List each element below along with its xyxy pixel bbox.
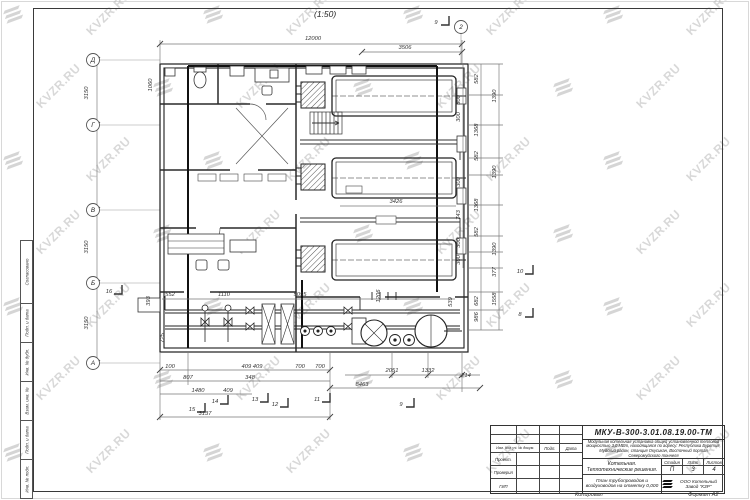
tb-role: Проект. (491, 453, 517, 465)
strip-label: Согласовано (24, 259, 29, 286)
section-marker-flag (114, 285, 122, 294)
dim-label: 1368 (474, 123, 480, 137)
tb-cell (540, 479, 560, 493)
dim-label: 1480 (192, 388, 206, 394)
strip-cell: Инв. № подл. (20, 460, 33, 499)
dim-label: 300 (456, 111, 462, 121)
strip-cell: Подп. и дата (20, 421, 33, 460)
section-marker-flag (525, 265, 533, 274)
dim-label: 1390 (492, 165, 498, 179)
tb-cell (491, 435, 517, 443)
section-marker-label: 14 (212, 399, 218, 405)
dim-label: 3506 (399, 45, 413, 51)
tb-cell (517, 453, 541, 465)
gallery-valves (201, 305, 352, 342)
section-marker-label: 11 (314, 397, 320, 403)
sheets-value: 4 (704, 466, 724, 474)
section-marker-label: 16 (106, 289, 113, 295)
dim-label: 2051 (385, 368, 399, 374)
strip-label: Взам. инв. № (24, 387, 29, 414)
section-marker-label: 10 (517, 269, 524, 275)
tb-cell (540, 426, 560, 434)
section-marker-flag (322, 393, 330, 402)
dim-label: 1390 (492, 242, 498, 256)
company-name: ООО Котельный Завод "КЗР" (674, 479, 723, 489)
section-marker-flag (260, 393, 268, 402)
dim-label: 100 (165, 364, 175, 370)
dim-label: 1368 (474, 198, 480, 212)
dim-label: 582 (474, 150, 480, 160)
dim-label: 300 (456, 237, 462, 247)
dim-label: 539 (448, 296, 454, 306)
grid-bubble-label: А (90, 360, 95, 367)
footer-copied: Копировал (575, 492, 603, 498)
section-marker-flag (220, 395, 228, 404)
strip-label: Инв. № дубл. (24, 348, 29, 375)
boiler-unit-1 (296, 76, 466, 116)
dim-label: 1332 (422, 368, 436, 374)
dim-label: 377 (492, 266, 498, 276)
grid-bubble-label: В (91, 207, 95, 214)
dim-label: 5055 (294, 292, 308, 298)
grid-bubble-label: Б (91, 280, 95, 287)
dim-label: 1390 (492, 89, 498, 103)
dim-label: 12000 (305, 36, 322, 42)
sheet-value: 3 (683, 466, 704, 474)
tb-cell (517, 435, 541, 443)
dim-label: 214 (460, 373, 471, 379)
dim-label: 300 (456, 254, 462, 264)
tb-cell (540, 466, 560, 478)
strip-cell: Согласовано (20, 240, 33, 304)
boiler-unit-2 (296, 158, 466, 198)
strip-cell: Инв. № дубл. (20, 343, 33, 382)
dim-label: 582 (474, 73, 480, 83)
dim-label: 3150 (84, 240, 90, 254)
dim-label: 700 (295, 364, 305, 370)
tb-cell (560, 453, 582, 465)
stairs (310, 112, 342, 134)
dim-label: 700 (315, 364, 325, 370)
dim-label: 807 (183, 375, 193, 381)
tb-cell (560, 479, 582, 493)
title-block: Изм. Кол.уч. № докум. Подп. Дата Проект.… (490, 425, 725, 494)
sheets-label: Листов (704, 459, 724, 465)
section-marker-label: 9 (434, 20, 438, 26)
grid-bubble-label: Д (90, 57, 96, 64)
title-block-main: МКУ-В-300-3.01.08.19.00-ТМ Модульная кот… (583, 426, 724, 493)
strip-cell: Взам. инв. № (20, 382, 33, 421)
dim-label: 409 (223, 388, 233, 394)
dim-label: 3426 (390, 199, 404, 205)
tb-cell (517, 479, 541, 493)
stage-table: Стадия Лист Листов П 3 4 ООО Котельный З… (662, 459, 724, 493)
dim-label: 743 (456, 209, 462, 219)
dim-label: 300 (456, 94, 462, 104)
dim-label: 552 (165, 292, 175, 298)
tb-cell (540, 435, 560, 443)
dim-label: 725 (160, 332, 166, 342)
tb-cell (560, 466, 582, 478)
tb-cell (560, 426, 582, 434)
stage-label: Стадия (662, 459, 683, 465)
equipment-labels (198, 174, 396, 224)
dim-label: 986 (474, 311, 480, 321)
company-logo-icon (663, 479, 672, 489)
dim-label: 8463 (356, 382, 370, 388)
tb-cell (540, 453, 560, 465)
tb-cell (560, 435, 582, 443)
section-marker-flag (406, 398, 414, 407)
section-marker-label: 15 (189, 407, 196, 413)
section-marker-flag (280, 398, 288, 407)
dim-label: 393 (146, 295, 152, 305)
section-marker-label: 8 (518, 312, 522, 318)
section-marker-label: 12 (272, 402, 279, 408)
wc-fixtures (165, 67, 206, 88)
strip-cell: Подп. и дата (20, 304, 33, 343)
dim-label: 682 (474, 295, 480, 305)
tb-cell (491, 426, 517, 434)
dim-label: 1558 (492, 292, 498, 306)
dim-label: 348 (245, 375, 255, 381)
section-marker-label: 9 (399, 402, 403, 408)
object-title: Котельная. Теплотехнические решения. (583, 459, 661, 475)
section-marker-label: 13 (252, 397, 259, 403)
strip-label: Подп. и дата (24, 426, 29, 454)
dim-label: 300 (456, 176, 462, 186)
project-description: Модульная котельная установка общей уста… (583, 440, 724, 459)
tb-role: ГИП (491, 479, 517, 493)
stage-value: П (662, 466, 683, 474)
tb-header-docs: Изм. Кол.уч. № докум. (491, 444, 540, 452)
sheet-title: План трубопроводов и воздуховодов на отм… (583, 475, 661, 493)
sheet-label: Лист (683, 459, 704, 465)
strip-label: Подп. и дата (24, 309, 29, 337)
dim-label: 1060 (148, 78, 154, 92)
document-number: МКУ-В-300-3.01.08.19.00-ТМ (583, 426, 724, 440)
tb-header-date: Дата (560, 444, 582, 452)
dim-label: 1206 (376, 289, 382, 303)
attribute-strip: Согласовано Подп. и дата Инв. № дубл. Вз… (20, 240, 33, 499)
section-marker-flag (441, 16, 449, 25)
drawing-sheet: { "page": { "scale_label": "(1:50)", "fo… (0, 0, 750, 500)
dim-label: 3150 (84, 316, 90, 330)
grid-bubble-label: 2 (458, 24, 463, 31)
footer-format: Формат А2 (688, 492, 719, 498)
dim-label: 1110 (218, 292, 231, 298)
tb-header-sign: Подп. (540, 444, 560, 452)
tb-cell (517, 466, 541, 478)
tb-cell (517, 426, 541, 434)
boiler-unit-3 (296, 240, 466, 280)
section-marker-flag (525, 308, 533, 317)
tb-role: Проверил (491, 466, 517, 478)
grid-bubble-label: Г (91, 122, 95, 129)
dim-label: 409 409 (242, 364, 264, 370)
dim-label: 582 (474, 226, 480, 236)
strip-label: Инв. № подл. (24, 465, 29, 492)
title-names: Котельная. Теплотехнические решения. Пла… (583, 459, 662, 493)
title-block-signatures: Изм. Кол.уч. № докум. Подп. Дата Проект.… (491, 426, 583, 493)
dim-label: 3150 (84, 86, 90, 100)
